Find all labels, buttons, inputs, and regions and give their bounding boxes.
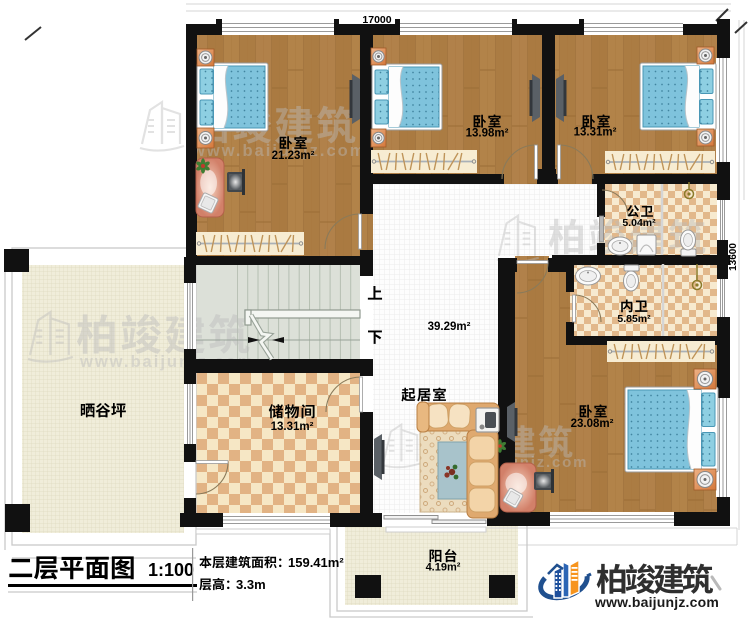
svg-text:159.41m²: 159.41m² xyxy=(288,555,344,570)
svg-text:23.08m²: 23.08m² xyxy=(571,418,614,430)
svg-text:13.31m²: 13.31m² xyxy=(574,127,617,139)
svg-text:5.85m²: 5.85m² xyxy=(617,313,651,325)
svg-text:17000: 17000 xyxy=(362,14,391,26)
svg-text:1:100: 1:100 xyxy=(148,560,194,580)
svg-text:4.19m²: 4.19m² xyxy=(426,562,461,574)
svg-text:5.04m²: 5.04m² xyxy=(622,217,656,229)
svg-text:13.98m²: 13.98m² xyxy=(466,128,509,140)
svg-text:21.23m²: 21.23m² xyxy=(272,150,315,162)
svg-text:13600: 13600 xyxy=(728,243,739,271)
svg-text:13.31m²: 13.31m² xyxy=(271,421,314,433)
svg-text:www.baijunjz.com: www.baijunjz.com xyxy=(594,594,719,610)
svg-text:3.3m: 3.3m xyxy=(236,577,266,592)
svg-text:39.29m²: 39.29m² xyxy=(428,321,471,333)
